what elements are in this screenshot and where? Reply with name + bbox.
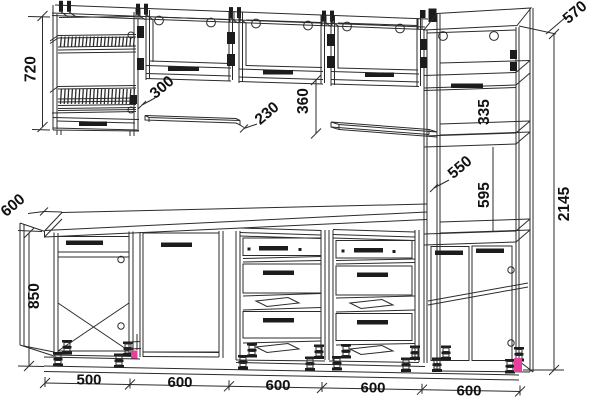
svg-text:595: 595 (476, 182, 493, 208)
svg-text:720: 720 (23, 56, 40, 82)
svg-text:600: 600 (265, 377, 290, 394)
svg-text:2145: 2145 (556, 186, 573, 221)
svg-text:600: 600 (167, 374, 192, 391)
svg-text:850: 850 (26, 283, 43, 309)
svg-text:335: 335 (476, 99, 493, 125)
svg-text:600: 600 (360, 380, 385, 397)
svg-text:600: 600 (456, 383, 481, 400)
svg-text:360: 360 (295, 88, 312, 114)
svg-text:500: 500 (76, 372, 101, 389)
